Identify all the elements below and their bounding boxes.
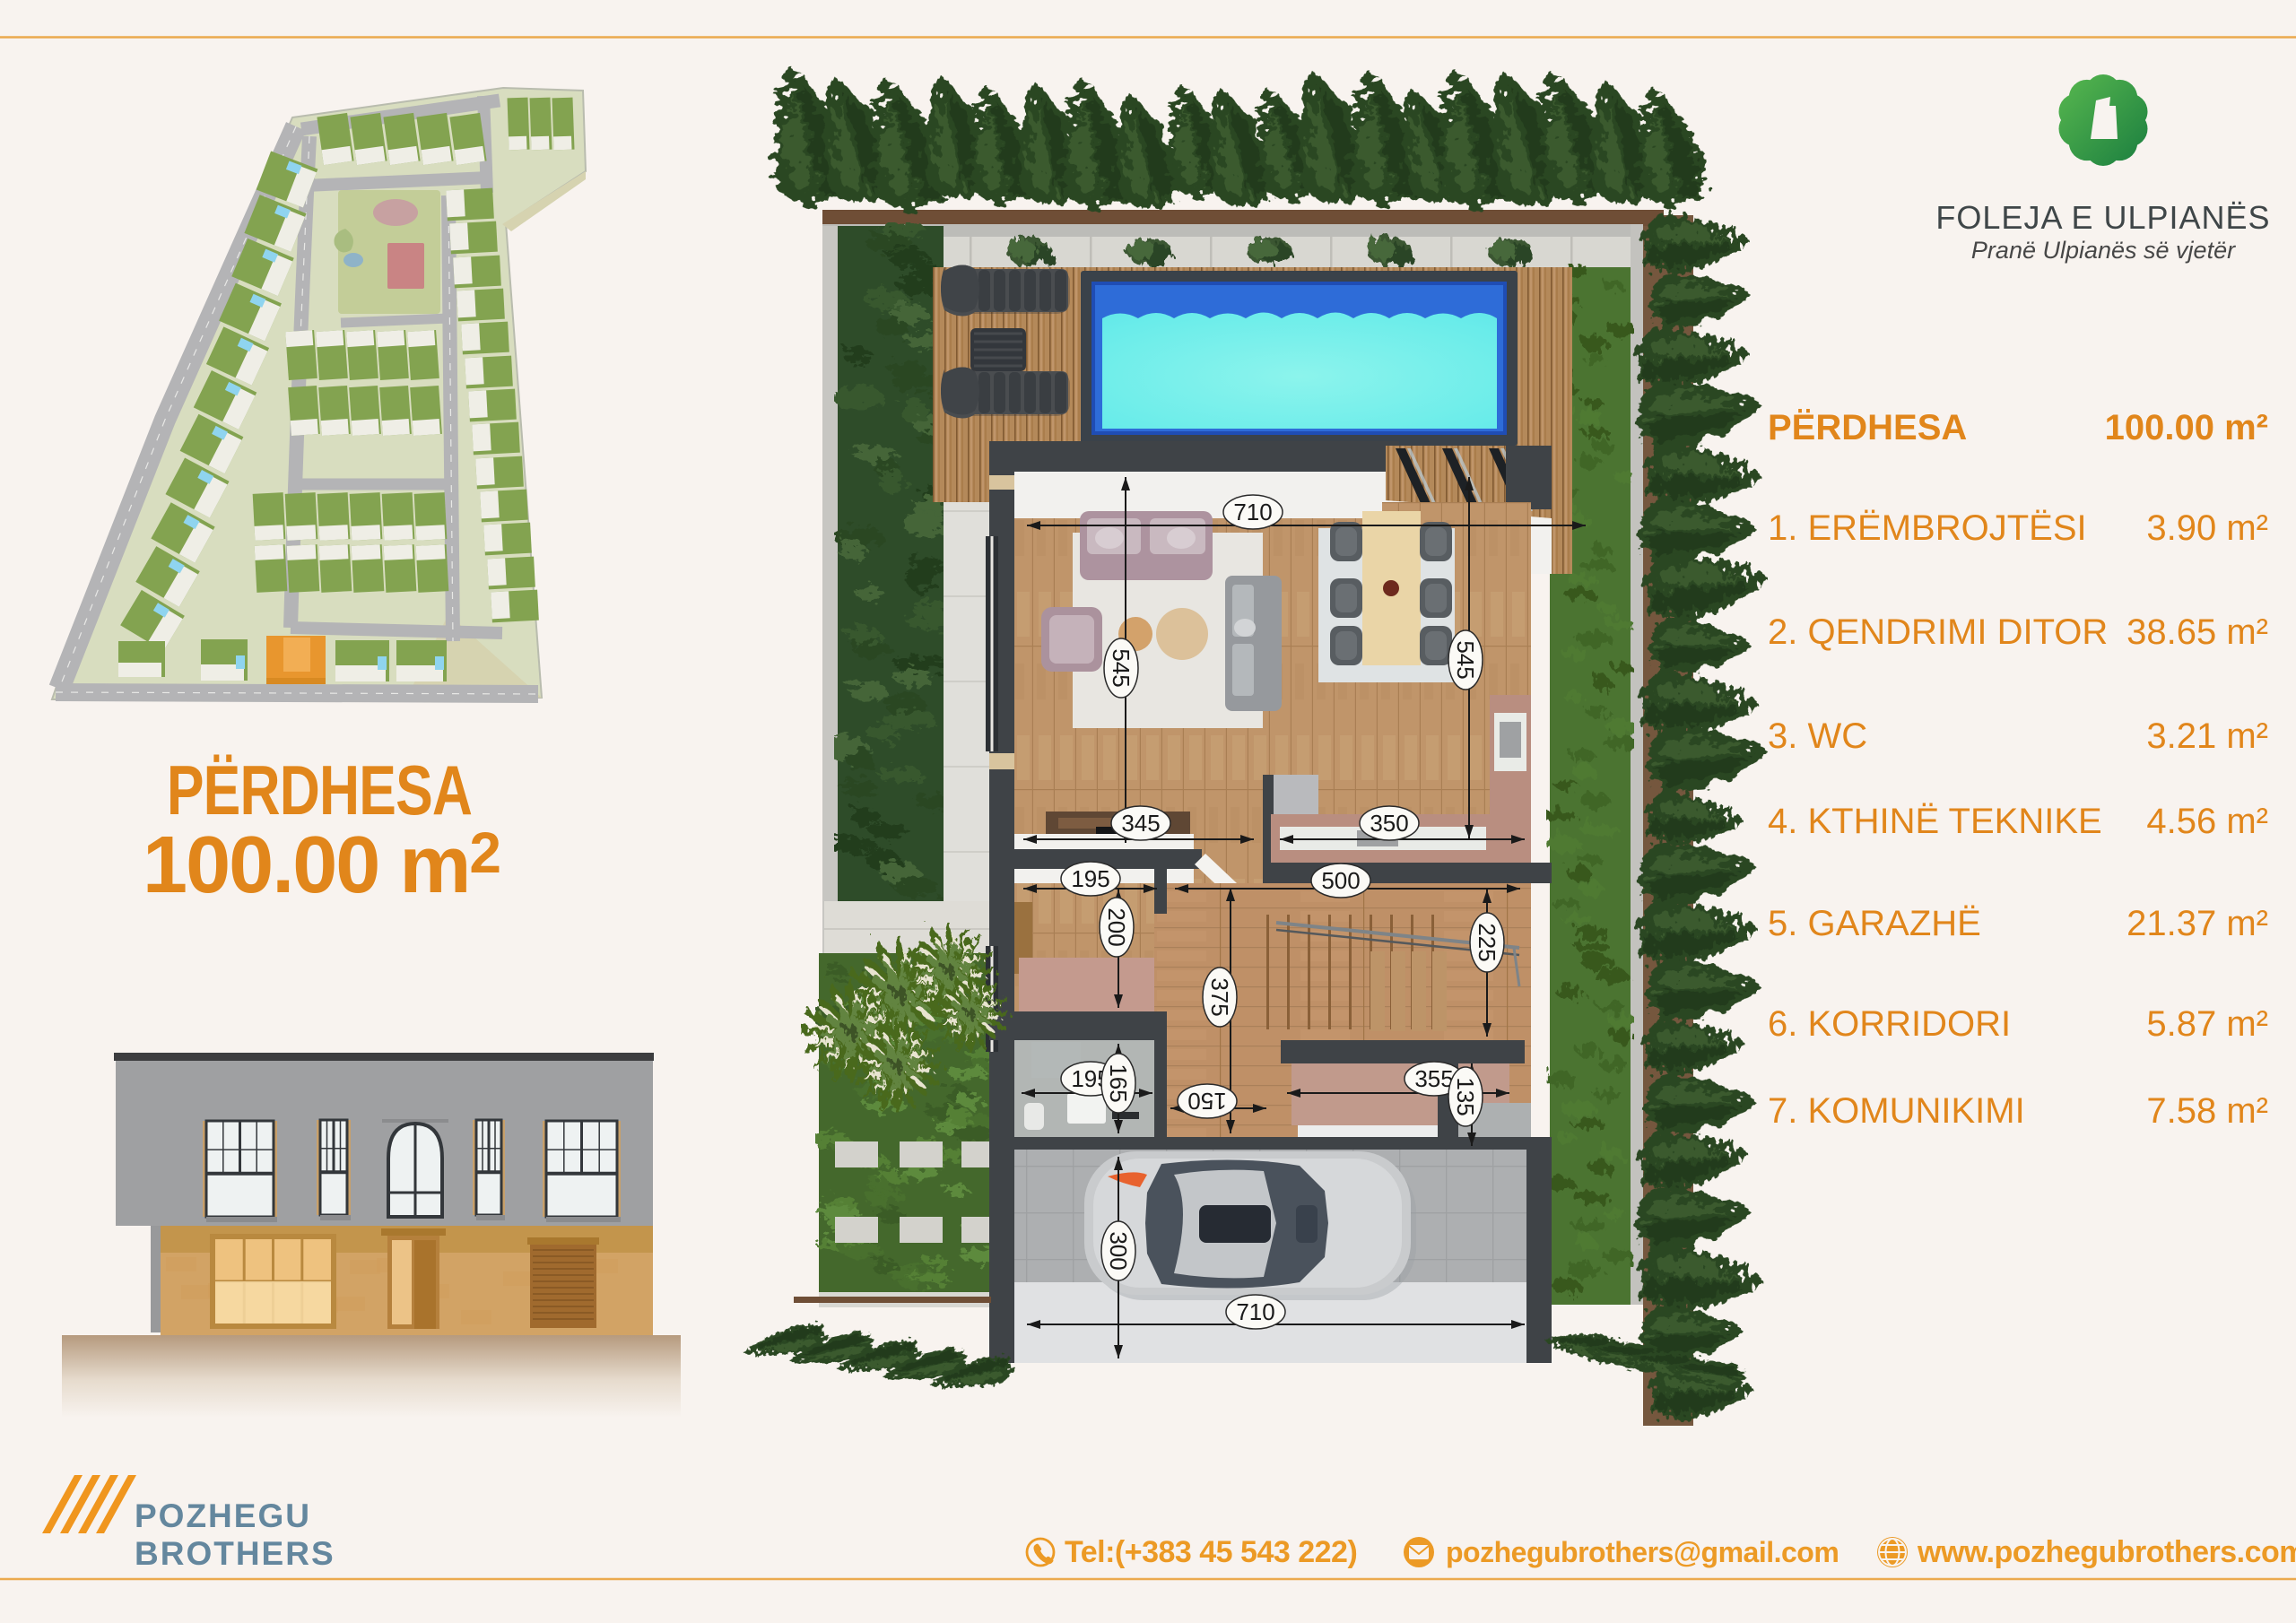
svg-text:710: 710 [1233, 499, 1272, 525]
svg-text:375: 375 [1206, 977, 1233, 1016]
svg-text:355: 355 [1414, 1065, 1453, 1092]
svg-text:545: 545 [1452, 640, 1479, 679]
svg-text:350: 350 [1370, 810, 1408, 837]
svg-text:300: 300 [1105, 1231, 1132, 1270]
svg-text:165: 165 [1105, 1063, 1132, 1102]
svg-text:135: 135 [1452, 1077, 1479, 1115]
svg-text:150: 150 [1187, 1088, 1226, 1115]
svg-text:545: 545 [1108, 648, 1135, 687]
svg-text:200: 200 [1103, 907, 1130, 946]
svg-text:225: 225 [1474, 923, 1500, 961]
svg-text:710: 710 [1236, 1298, 1274, 1325]
svg-text:345: 345 [1121, 810, 1160, 837]
svg-text:195: 195 [1071, 865, 1109, 892]
svg-text:500: 500 [1321, 867, 1360, 894]
